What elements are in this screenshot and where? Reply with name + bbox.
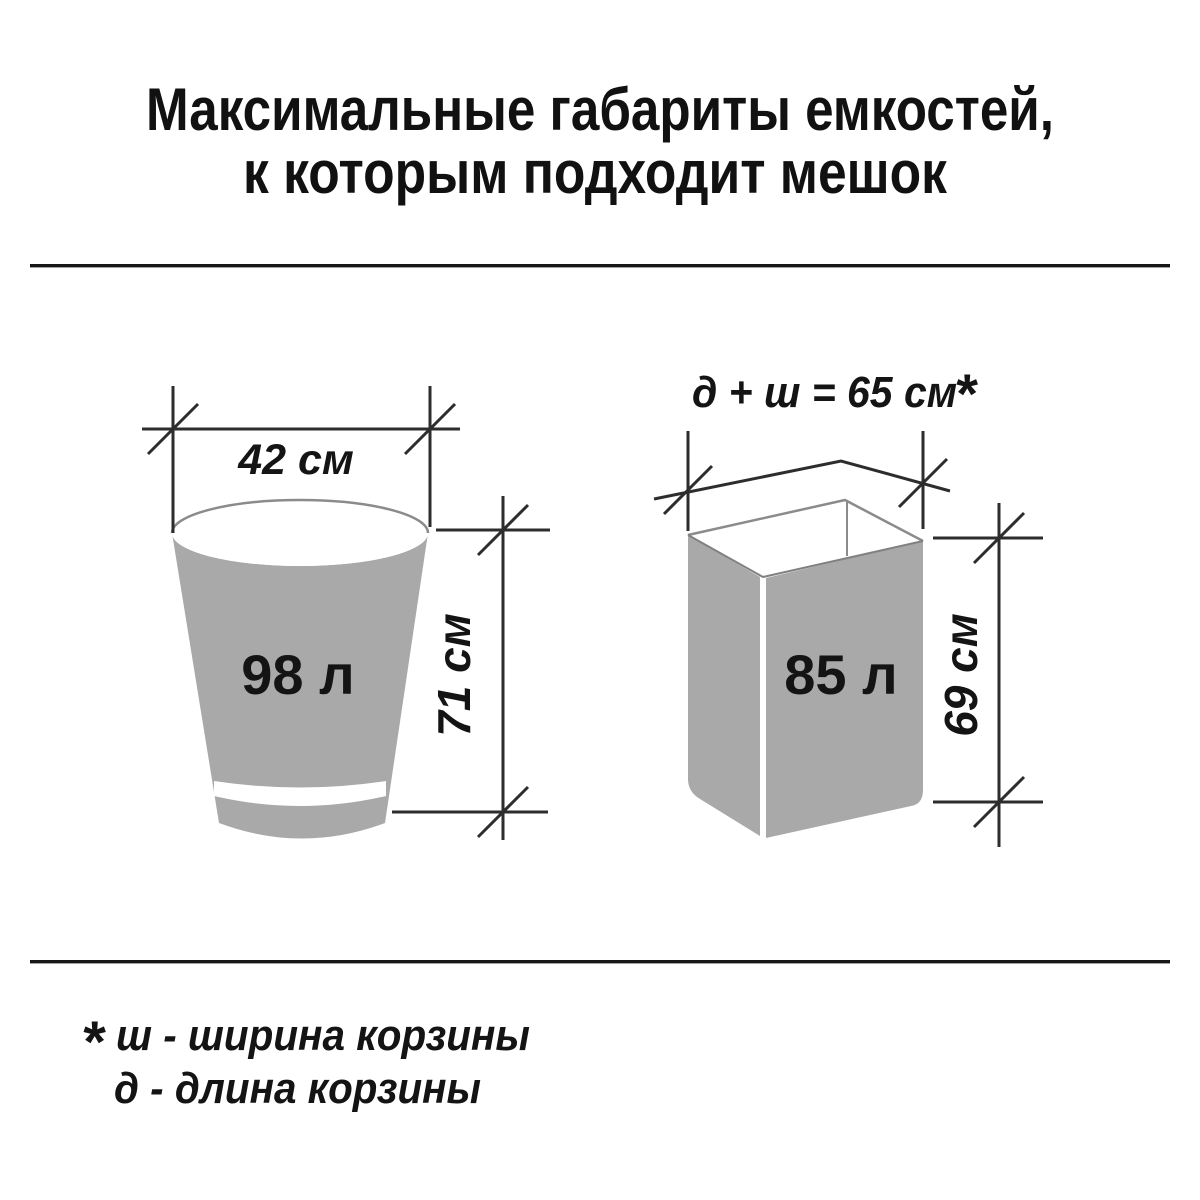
svg-text:ш - ширина корзины: ш - ширина корзины [116, 1011, 530, 1060]
svg-text:85 л: 85 л [784, 643, 897, 706]
svg-text:д - длина корзины: д - длина корзины [114, 1064, 481, 1113]
svg-text:Максимальные габариты емкостей: Максимальные габариты емкостей, [146, 76, 1054, 143]
svg-text:98 л: 98 л [241, 643, 354, 706]
svg-text:д + ш = 65 см: д + ш = 65 см [692, 368, 957, 417]
svg-text:*: * [81, 1010, 106, 1075]
svg-text:к которым подходит мешок: к которым подходит мешок [243, 139, 948, 206]
svg-text:42 см: 42 см [237, 436, 354, 484]
svg-text:69 см: 69 см [935, 613, 987, 737]
svg-text:*: * [954, 362, 978, 425]
svg-text:71 см: 71 см [428, 613, 480, 737]
